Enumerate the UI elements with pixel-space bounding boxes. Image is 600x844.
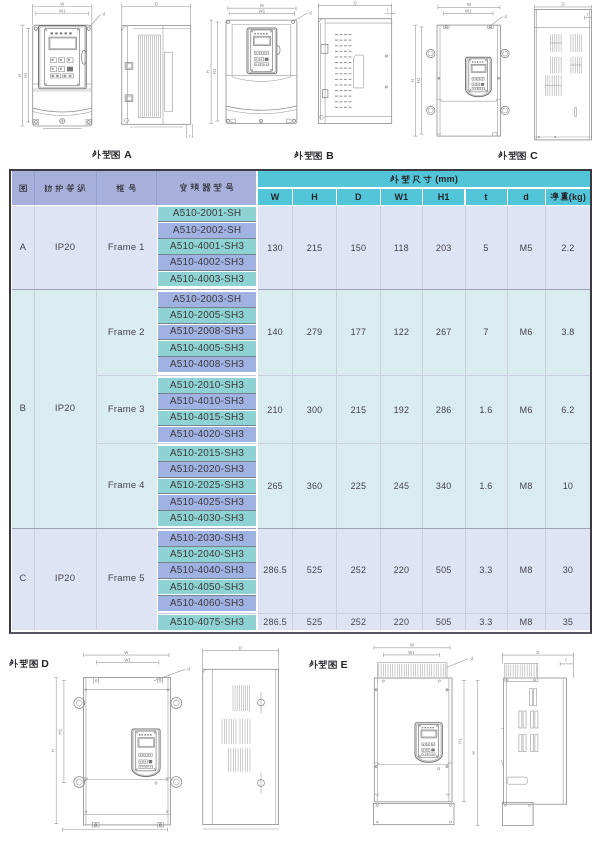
svg-text:D: D xyxy=(155,1,158,6)
svg-text:W1: W1 xyxy=(465,9,472,14)
svg-text:W1: W1 xyxy=(124,657,131,662)
svg-text:H: H xyxy=(206,70,211,73)
svg-text:d: d xyxy=(505,14,508,19)
svg-text:H: H xyxy=(410,79,415,82)
svg-text:W1: W1 xyxy=(259,8,266,13)
svg-text:H1: H1 xyxy=(57,728,62,734)
svg-text:d: d xyxy=(471,656,474,661)
svg-text:H: H xyxy=(471,751,476,754)
svg-text:H1: H1 xyxy=(416,77,421,83)
svg-text:D: D xyxy=(239,646,242,651)
svg-text:W: W xyxy=(124,650,129,655)
svg-text:H1: H1 xyxy=(23,72,28,78)
svg-text:t: t xyxy=(565,658,567,663)
svg-text:H: H xyxy=(17,74,22,77)
svg-text:D: D xyxy=(354,1,357,6)
svg-text:W: W xyxy=(467,2,472,7)
svg-text:d: d xyxy=(309,10,312,15)
svg-text:D: D xyxy=(536,650,539,655)
svg-text:D: D xyxy=(561,2,564,7)
svg-text:t: t xyxy=(587,12,589,17)
svg-text:W: W xyxy=(260,3,265,8)
svg-text:t: t xyxy=(189,134,191,139)
svg-text:d: d xyxy=(103,12,106,17)
svg-text:H: H xyxy=(51,749,56,752)
svg-text:W: W xyxy=(60,1,65,6)
svg-text:W1: W1 xyxy=(59,8,66,13)
svg-text:W1: W1 xyxy=(408,650,415,655)
svg-text:t: t xyxy=(387,8,389,13)
svg-text:d: d xyxy=(188,667,191,672)
svg-text:H1: H1 xyxy=(458,738,463,744)
svg-text:W: W xyxy=(410,643,415,648)
svg-text:H1: H1 xyxy=(212,68,217,74)
